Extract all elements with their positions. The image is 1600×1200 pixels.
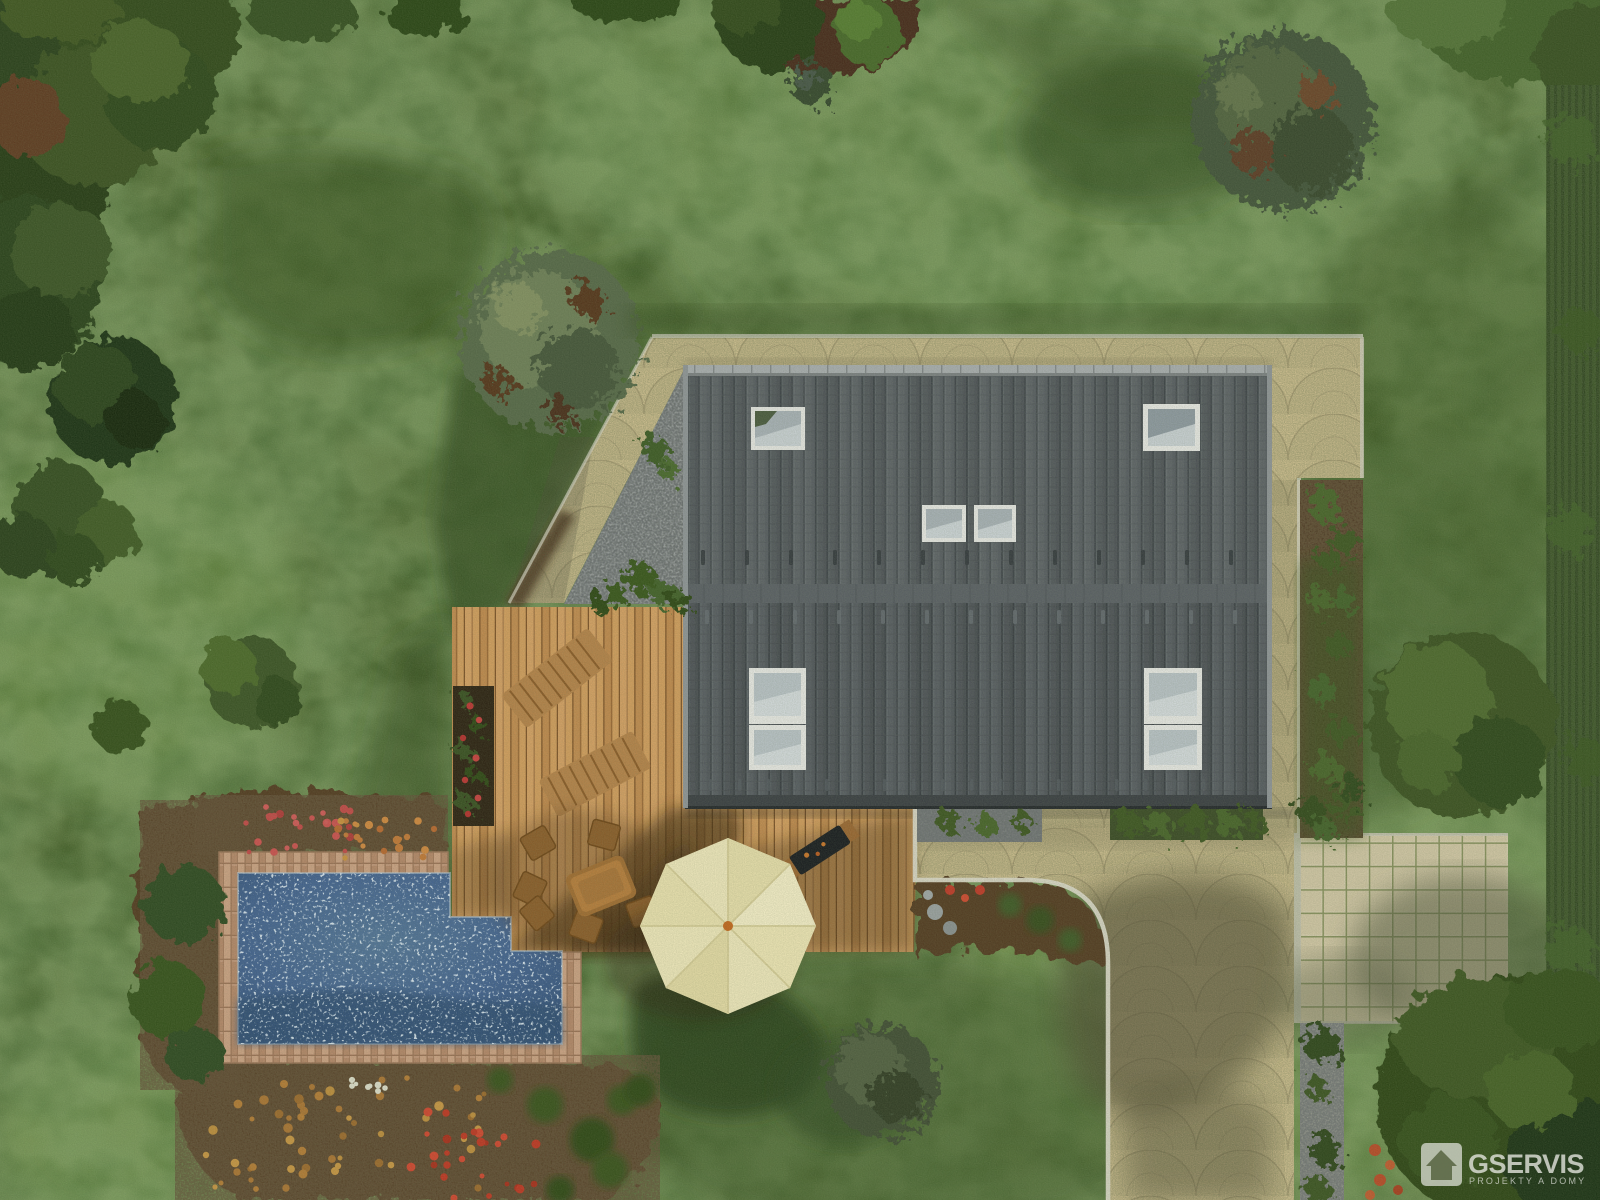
svg-text:GSERVIS: GSERVIS [1468, 1149, 1584, 1179]
svg-text:PROJEKTY A DOMY: PROJEKTY A DOMY [1469, 1176, 1586, 1186]
